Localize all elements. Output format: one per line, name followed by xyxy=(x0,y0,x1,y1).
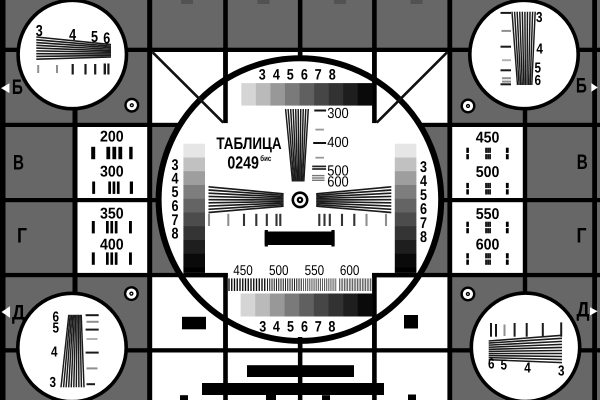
svg-text:4: 4 xyxy=(524,361,531,377)
svg-text:4: 4 xyxy=(536,42,543,58)
svg-text:600: 600 xyxy=(476,237,500,254)
svg-text:7: 7 xyxy=(315,66,322,83)
svg-text:200: 200 xyxy=(100,128,124,145)
svg-text:7: 7 xyxy=(315,319,322,336)
svg-text:Г: Г xyxy=(17,225,27,248)
svg-text:4: 4 xyxy=(273,66,281,83)
svg-text:В: В xyxy=(577,151,588,174)
svg-text:400: 400 xyxy=(327,135,349,151)
svg-text:450: 450 xyxy=(233,263,253,279)
svg-text:6: 6 xyxy=(301,319,308,336)
svg-text:Б: Б xyxy=(576,75,587,98)
svg-text:3: 3 xyxy=(536,10,543,26)
svg-text:350: 350 xyxy=(100,205,124,222)
svg-text:6: 6 xyxy=(301,66,308,83)
svg-text:бис: бис xyxy=(260,154,271,163)
svg-text:300: 300 xyxy=(100,164,124,181)
svg-text:8: 8 xyxy=(420,229,427,246)
svg-text:8: 8 xyxy=(329,66,336,83)
svg-text:5: 5 xyxy=(287,319,294,336)
svg-text:6: 6 xyxy=(534,73,541,89)
svg-text:3: 3 xyxy=(259,66,266,83)
svg-text:0249: 0249 xyxy=(227,153,259,173)
svg-text:Б: Б xyxy=(12,76,23,99)
svg-text:3: 3 xyxy=(558,363,565,379)
svg-text:8: 8 xyxy=(328,319,335,336)
svg-text:4: 4 xyxy=(51,344,58,360)
svg-text:600: 600 xyxy=(327,174,349,190)
svg-text:5: 5 xyxy=(91,29,98,46)
svg-text:Д: Д xyxy=(577,299,590,322)
svg-text:5: 5 xyxy=(501,358,508,374)
svg-text:600: 600 xyxy=(340,263,360,279)
svg-text:300: 300 xyxy=(327,106,349,122)
svg-text:5: 5 xyxy=(53,321,60,337)
svg-text:500: 500 xyxy=(269,263,289,279)
svg-text:400: 400 xyxy=(100,236,124,253)
svg-text:5: 5 xyxy=(287,66,294,83)
svg-text:550: 550 xyxy=(476,206,500,223)
svg-text:Г: Г xyxy=(577,225,587,248)
svg-text:500: 500 xyxy=(476,164,500,181)
svg-text:450: 450 xyxy=(476,130,500,147)
svg-text:3: 3 xyxy=(36,23,43,40)
svg-text:ТАБЛИЦА: ТАБЛИЦА xyxy=(216,134,281,153)
svg-text:4: 4 xyxy=(273,319,281,336)
svg-text:550: 550 xyxy=(305,263,325,279)
svg-text:В: В xyxy=(13,151,24,174)
svg-text:8: 8 xyxy=(172,226,179,243)
svg-text:4: 4 xyxy=(69,27,76,44)
svg-text:6: 6 xyxy=(103,31,110,48)
svg-text:3: 3 xyxy=(49,375,56,391)
svg-text:3: 3 xyxy=(259,319,266,336)
svg-text:Д: Д xyxy=(12,302,25,325)
svg-text:6: 6 xyxy=(488,356,495,372)
